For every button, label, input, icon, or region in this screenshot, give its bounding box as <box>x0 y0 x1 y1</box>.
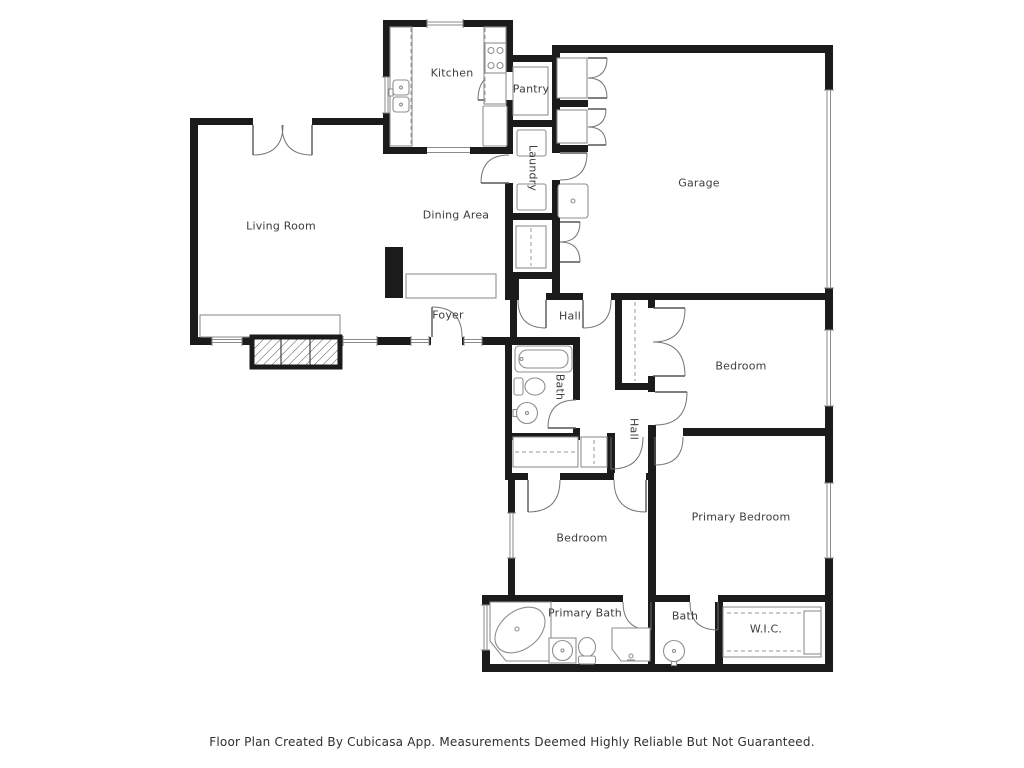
window-primary-bath <box>481 605 490 650</box>
garage-door <box>824 90 834 288</box>
water-heater <box>558 184 588 218</box>
fireplace-hearth <box>200 315 340 337</box>
closet-doors-garage-top <box>588 58 607 145</box>
shower <box>612 628 650 661</box>
door-bedroom-upper <box>655 392 687 425</box>
sink-middle-bath <box>513 403 538 424</box>
door-bedroom-lower-closet <box>528 480 560 512</box>
corner-tub <box>486 598 554 662</box>
door-hall-closet <box>518 300 546 328</box>
bathtub <box>515 346 572 372</box>
window-bedroom-lower <box>507 513 516 558</box>
window-kitchen-top <box>427 19 463 28</box>
door-bedroom-lower <box>614 480 646 512</box>
door-bath-lower <box>690 602 718 630</box>
linen-closet-left <box>513 437 578 467</box>
cased-opening-kitchen <box>427 146 470 155</box>
kitchen-stove <box>485 43 506 73</box>
linen-closet-right <box>581 437 607 467</box>
toilet-middle-bath <box>514 378 545 395</box>
door-dining <box>481 155 509 183</box>
door-bath-middle <box>548 400 576 428</box>
door-primary-bath <box>623 602 651 630</box>
sink-primary-bath <box>549 638 576 663</box>
window-foyer-right <box>464 336 482 346</box>
sink-lower-bath <box>664 641 685 666</box>
window-living-right <box>343 336 377 346</box>
window-primary-bedroom <box>824 483 834 558</box>
closet-doors-bedroom-upper <box>653 308 685 376</box>
washer <box>517 130 546 156</box>
kitchen-fridge <box>483 106 507 146</box>
wic-shelving <box>723 607 821 657</box>
pantry-shelf <box>513 67 548 115</box>
door-front-entry <box>432 307 462 337</box>
door-garage-to-hall <box>583 300 611 328</box>
footer-disclaimer: Floor Plan Created By Cubicasa App. Meas… <box>0 735 1024 749</box>
dryer <box>517 184 546 210</box>
floor-plan-canvas <box>0 0 1024 768</box>
door-hall-vestibule <box>611 437 643 469</box>
toilet-primary-bath <box>579 638 596 665</box>
dining-buffet <box>406 274 496 298</box>
door-laundry-to-garage <box>560 153 587 180</box>
window-foyer-left <box>411 336 429 346</box>
window-bedroom-upper <box>824 330 834 406</box>
french-doors-living <box>253 125 312 155</box>
closet-doors-garage-lower <box>560 222 580 262</box>
hall-closet-shelf <box>516 226 546 268</box>
door-primary-bedroom <box>655 437 683 465</box>
floor-plan: KitchenPantryLaundryGarageLiving RoomDin… <box>0 0 1024 768</box>
fireplace <box>252 337 340 367</box>
